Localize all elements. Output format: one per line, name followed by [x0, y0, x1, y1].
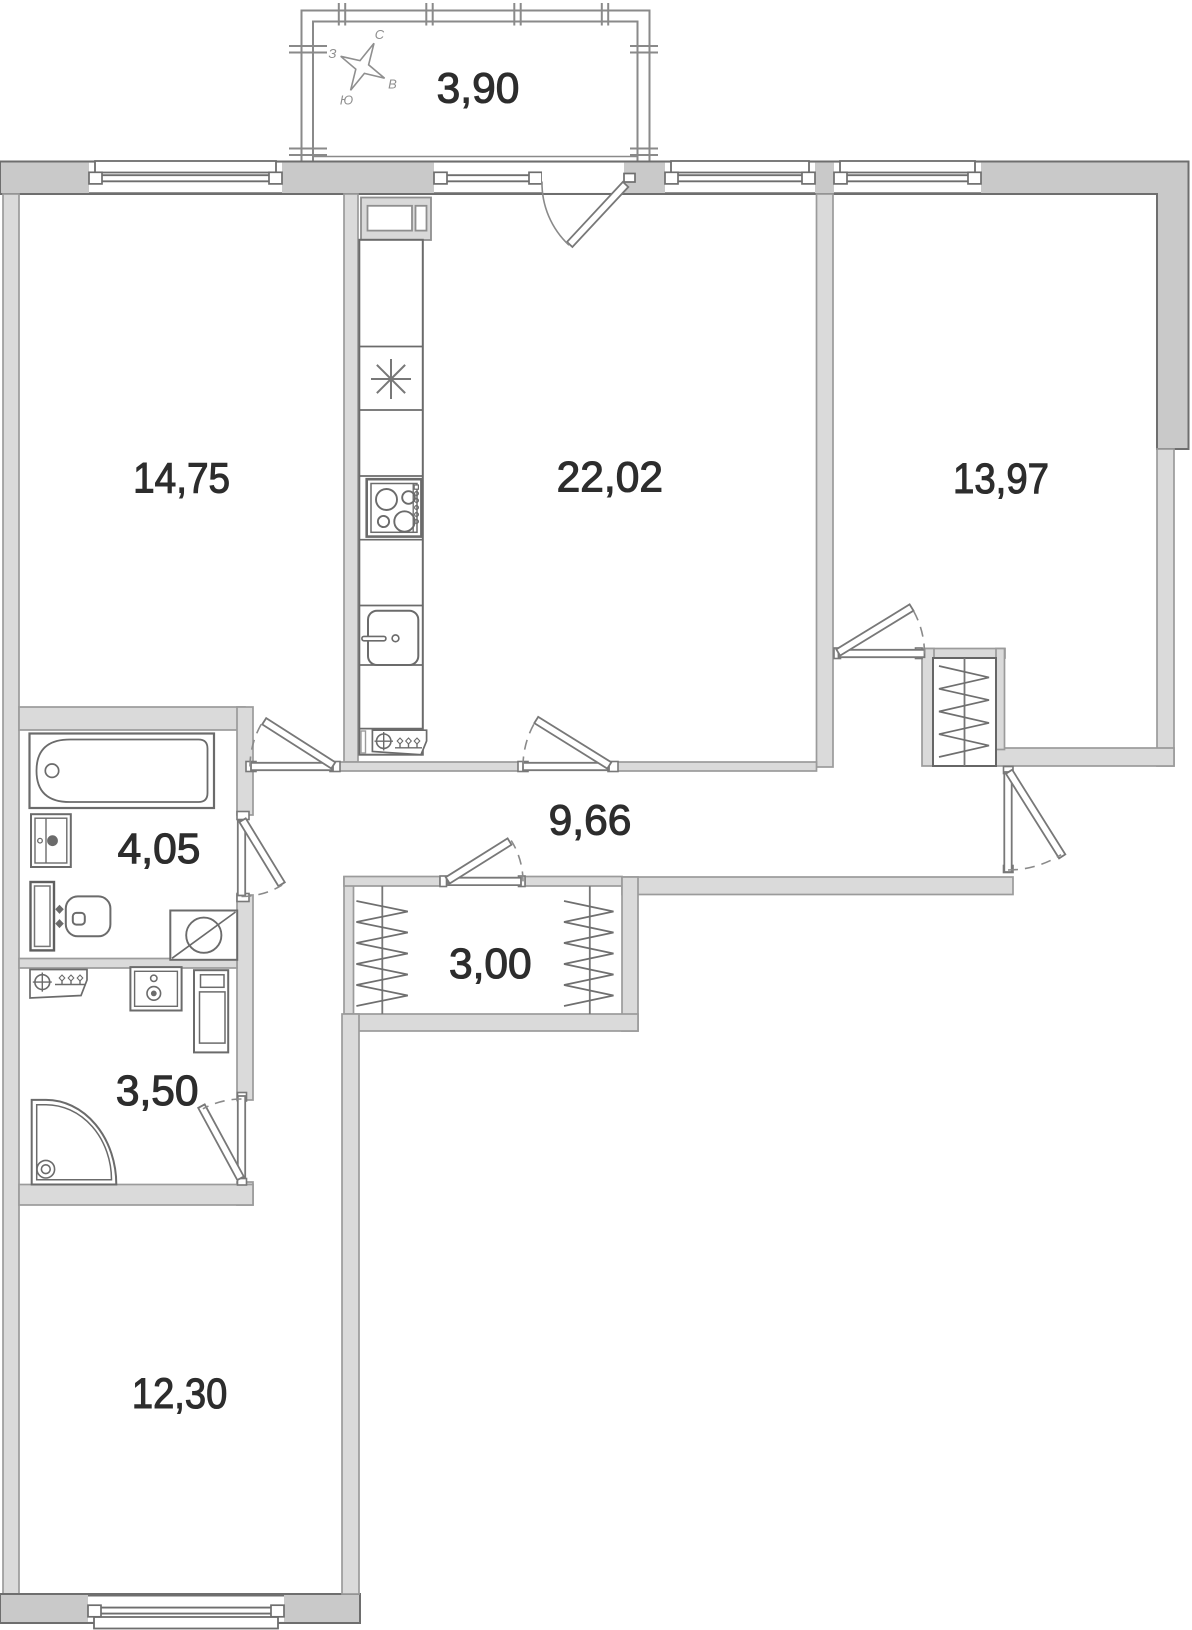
svg-text:22,02: 22,02 [557, 455, 663, 502]
svg-text:4,05: 4,05 [118, 826, 201, 873]
svg-text:С: С [375, 27, 385, 42]
svg-text:3,00: 3,00 [449, 941, 532, 988]
svg-text:13,97: 13,97 [953, 456, 1049, 503]
svg-text:3,90: 3,90 [437, 66, 520, 113]
svg-text:Ю: Ю [340, 93, 353, 108]
svg-text:14,75: 14,75 [133, 456, 230, 503]
svg-text:В: В [388, 77, 397, 92]
svg-text:З: З [329, 46, 337, 61]
svg-text:12,30: 12,30 [132, 1371, 227, 1418]
svg-text:3,50: 3,50 [116, 1068, 199, 1115]
svg-text:9,66: 9,66 [549, 797, 632, 844]
